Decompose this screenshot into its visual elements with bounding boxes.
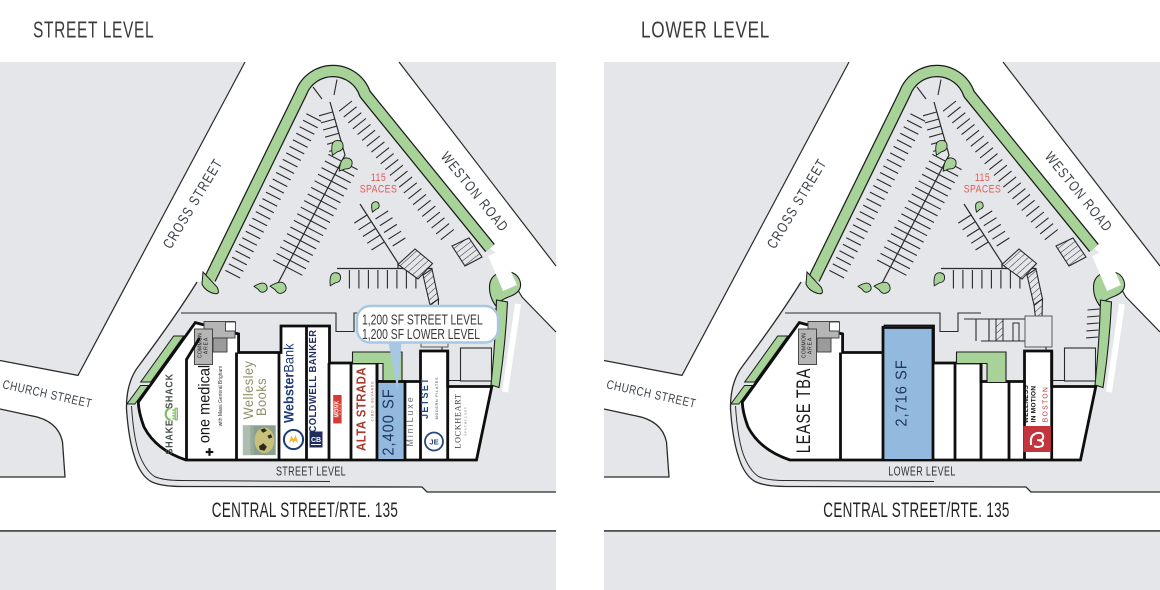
svg-text:STREET LEVEL: STREET LEVEL — [276, 465, 346, 479]
svg-text:ALTA STRADA: ALTA STRADA — [354, 367, 369, 451]
svg-text:BOSTON: BOSTON — [1042, 386, 1049, 422]
svg-text:2,400 SF: 2,400 SF — [380, 388, 397, 455]
svg-text:Books: Books — [254, 378, 269, 416]
svg-text:CB: CB — [311, 437, 321, 444]
svg-text:one medical: one medical — [196, 365, 214, 443]
svg-text:WebsterBank: WebsterBank — [281, 343, 296, 423]
svg-text:1,200 SF LOWER LEVEL: 1,200 SF LOWER LEVEL — [362, 326, 480, 342]
svg-text:JETSET: JETSET — [420, 377, 432, 419]
svg-text:LOCKHEART: LOCKHEART — [453, 393, 462, 448]
svg-text:CIBO E BEVANDE: CIBO E BEVANDE — [371, 381, 375, 422]
svg-text:LOWER LEVEL: LOWER LEVEL — [888, 465, 955, 479]
svg-text:COLDWELL BANKER: COLDWELL BANKER — [308, 330, 320, 433]
svg-text:STREET LEVEL: STREET LEVEL — [33, 17, 154, 43]
svg-text:C A F E: C A F E — [338, 403, 342, 415]
svg-text:JE: JE — [429, 437, 438, 446]
svg-text:APOTHECARY: APOTHECARY — [464, 406, 468, 436]
svg-text:MODERN PILATES: MODERN PILATES — [435, 377, 439, 420]
svg-text:CENTRAL STREET/RTE. 135: CENTRAL STREET/RTE. 135 — [823, 498, 1009, 522]
svg-text:IN MOTION: IN MOTION — [1030, 386, 1037, 423]
svg-text:MiniLuxe: MiniLuxe — [405, 395, 415, 446]
svg-text:CENTRAL STREET/RTE. 135: CENTRAL STREET/RTE. 135 — [212, 498, 398, 522]
svg-text:WELLNESS: WELLNESS — [1023, 385, 1030, 423]
svg-text:LEASE TBA: LEASE TBA — [793, 368, 814, 453]
svg-text:SHACK: SHACK — [164, 373, 176, 409]
svg-text:SHAKE: SHAKE — [164, 419, 176, 454]
svg-text:with Mass General Brigham: with Mass General Brigham — [218, 366, 224, 427]
svg-text:2,716 SF: 2,716 SF — [893, 359, 910, 426]
svg-text:LOWER LEVEL: LOWER LEVEL — [641, 17, 770, 43]
